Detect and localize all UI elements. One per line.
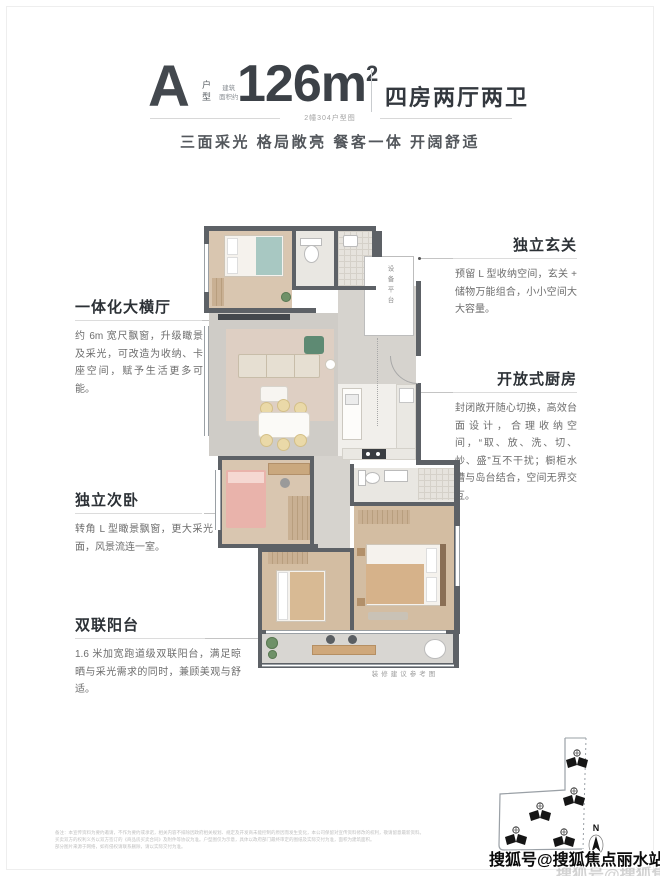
toilet-icon [304,245,319,263]
wardrobe [288,496,310,540]
wall [292,231,296,289]
window [204,244,209,292]
area-prefix-line2: 面积约 [219,93,239,102]
callout-bedroom-body: 转角 L 型瞰景飘窗，更大采光面，风景流连一室。 [75,521,213,556]
bed-blanket [290,572,324,620]
vanity [384,470,408,482]
callout-kitchen-rule [453,392,577,393]
plant [281,292,291,302]
callout-bedroom-rule [75,513,202,514]
dining-chair [277,438,290,451]
wall [372,231,382,257]
area-value: 126m2 [237,58,377,110]
callout-living-title: 一体化大横厅 [75,296,171,317]
window [266,630,446,634]
wall [204,308,316,313]
pillow [227,238,238,255]
wall [310,456,314,548]
window [204,326,209,436]
subline-right [368,118,512,119]
header-divider [371,70,372,112]
disclaimer-line: 买卖双方的权利义务以双方签订的《商品房买卖合同》及附件等协议为准。户型图仅为示意… [55,836,540,843]
disclaimer-line: 备注：本宣传资料为要约邀请，不作为要约或承诺，相关内容不排除因政府相关规划、规定… [55,829,540,836]
desk-chair [280,478,290,488]
pillow-row [278,572,288,620]
slogan: 三面采光 格局敞亮 餐客一体 开阔舒适 [0,131,660,152]
callout-kitchen-title: 开放式厨房 [455,368,577,389]
burner [376,452,380,456]
wall [334,231,338,286]
area-prefix-line1: 建筑 [219,84,239,93]
wardrobe [212,278,224,306]
bed-blanket [366,564,424,604]
fridge [399,388,414,403]
dining-chair [294,434,307,447]
floor-plan: 设备平台 [204,226,460,671]
callout-foyer-title: 独立玄关 [455,234,577,255]
wall [258,548,262,634]
sofa [238,354,320,378]
compass-north-label: N [593,823,600,833]
rooms-label: 四房两厅两卫 [385,80,529,112]
sofa-cushion-line [266,354,267,378]
callout-foyer-body: 预留 L 型收纳空间，玄关 + 储物万能组合，小小空间大大容量。 [455,266,577,319]
floorplan-poster: A 户型 建筑 面积约 126m2 四房两厅两卫 2幢304户型图 三面采光 格… [0,0,660,876]
bed-bench [368,612,408,620]
pillow [227,257,238,274]
callout-living-body: 约 6m 宽尺飘窗，升级瞰景及采光，可改造为收纳、卡座空间，赋予生活更多可能。 [75,328,203,398]
dining-chair [277,399,290,412]
callout-foyer-rule [453,258,577,259]
toilet-icon [365,472,380,484]
wall [416,281,421,356]
plan-disclaimer-caption: 装修建议参考图 [330,668,480,678]
pillow [426,577,437,602]
side-table [325,359,336,370]
sofa-cushion-line [294,354,295,378]
area-prefix: 建筑 面积约 [219,84,239,102]
subline-left [150,118,294,119]
wardrobe [358,510,410,524]
bed-blanket [256,237,282,275]
balcony-rail-window [262,664,454,667]
equipment-platform: 设备平台 [364,256,414,336]
site-building [553,829,575,847]
window [455,526,460,586]
island-sink [345,394,359,405]
pillow [426,548,437,573]
platform-dotted-line [377,338,379,426]
wardrobe [268,552,308,564]
callout-kitchen-body: 封闭敞开随心切换，高效台面设计，合理收纳空间，“取、放、洗、切、炒、盛”互不干扰… [455,400,577,505]
desk [268,463,310,475]
callout-living-rule [75,320,202,321]
balcony-table [312,645,376,655]
balcony-stool [348,635,357,644]
hallway-floor [314,456,350,548]
unit-type-label: 户型 [200,80,213,104]
wall [204,226,376,231]
callout-bedroom-title: 独立次卧 [75,489,139,510]
plant [266,637,278,649]
wall [350,548,354,634]
plant [268,650,277,659]
wall [292,286,376,290]
washbasin-icon [343,235,358,247]
site-building [563,788,585,806]
nightstand [357,598,365,606]
nightstand [357,548,365,556]
balcony-stool [326,635,335,644]
parcel-dashed-edge [583,738,586,849]
burner [366,452,370,456]
disclaimer-line: 部分图片来源于网络，如有侵权请联系删除，请以实际交付为准。 [55,843,540,850]
wall [416,383,421,460]
laundry-basin [424,639,446,659]
site-building [566,750,588,768]
equipment-platform-label: 设备平台 [384,265,394,307]
watermark: 搜狐号@搜狐焦点丽水站 [489,846,660,870]
pillow-row [228,472,264,483]
wall [350,502,458,506]
wall [350,464,354,506]
tv-console [218,314,290,320]
legal-disclaimer: 备注：本宣传资料为要约邀请，不作为要约或承诺，相关内容不排除因政府相关规划、规定… [55,829,540,850]
site-building [529,803,551,821]
shower [418,468,454,500]
window [215,470,221,530]
floor-caption: 2幢304户型图 [280,113,380,123]
headboard [440,544,446,606]
unit-type-letter: A [148,58,190,116]
dining-chair [260,434,273,447]
callout-balcony-title: 双联阳台 [75,614,139,635]
lounge-chair [304,336,324,354]
wall [218,456,314,460]
callout-balcony-rule [75,638,205,639]
